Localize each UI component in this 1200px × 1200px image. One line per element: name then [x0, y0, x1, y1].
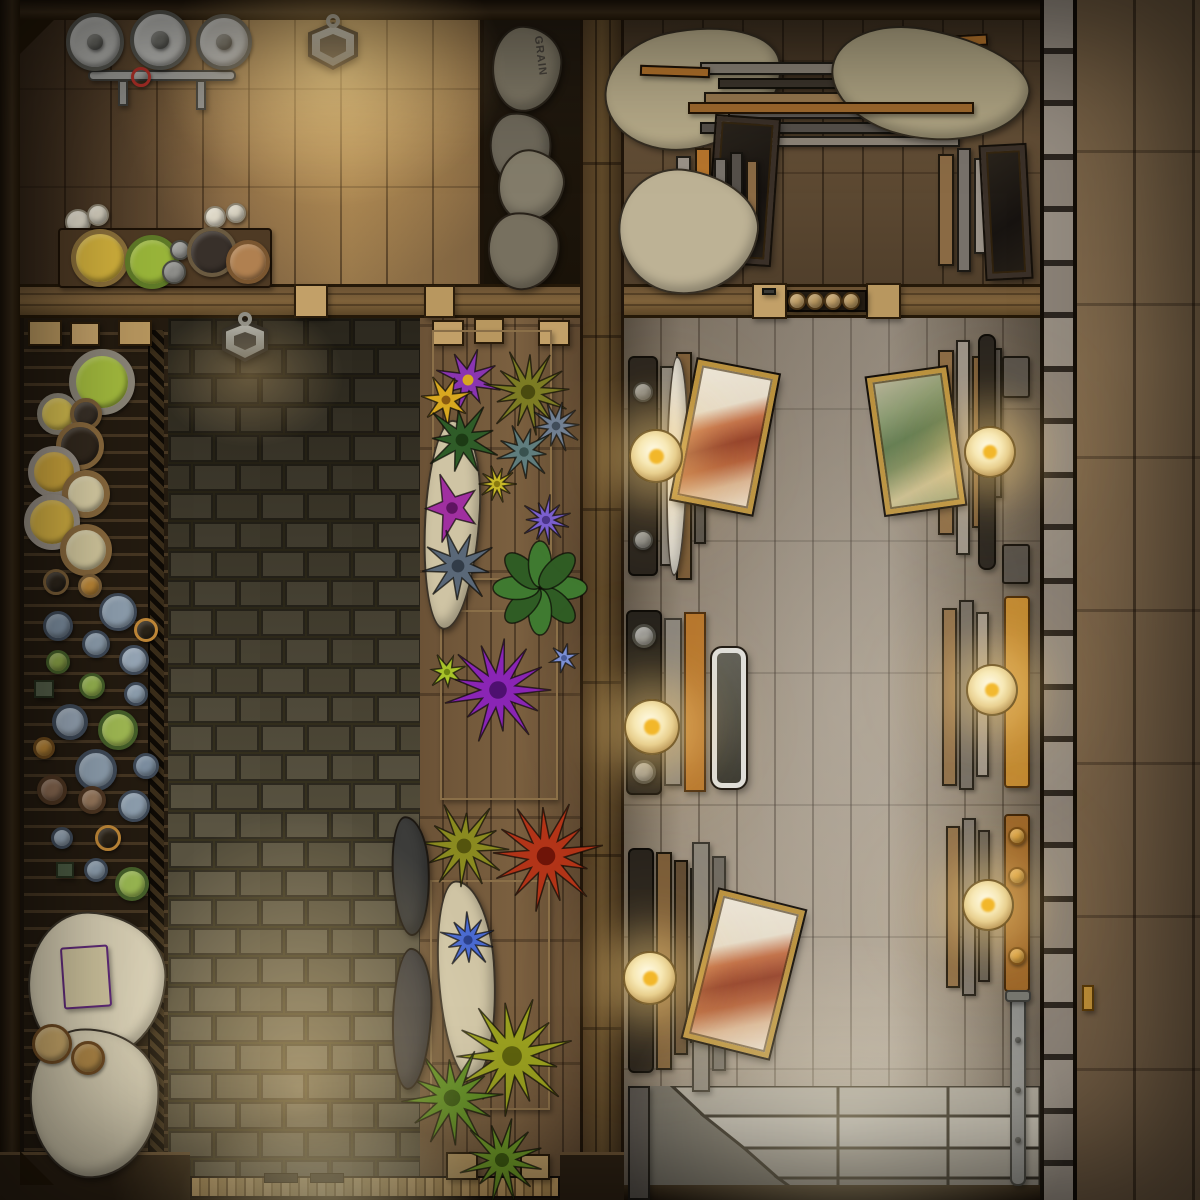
candle-lamp[interactable]: [623, 951, 677, 1005]
small-chest: [56, 862, 74, 878]
garlic-bundle: [204, 206, 226, 228]
gold-medallion: [1008, 867, 1026, 885]
water-pipe-stub: [118, 80, 128, 106]
bench-slat: [957, 148, 971, 272]
candle-flame: [643, 971, 658, 986]
clay-jar: [78, 786, 106, 814]
bench-plank-orange: [684, 612, 706, 792]
green-orb: [79, 673, 105, 699]
plant-gray-agave: [418, 526, 498, 606]
bench-slat: [938, 154, 954, 266]
amber-jar: [33, 737, 55, 759]
candle-flame: [644, 719, 660, 735]
metal-tankard: [633, 530, 653, 550]
bench-slat: [946, 826, 960, 988]
pipe-valve-hub: [151, 31, 169, 49]
log-end: [824, 292, 842, 310]
glass-orb: [124, 682, 148, 706]
amber-ring-jar: [134, 618, 158, 642]
candle-flame: [981, 898, 995, 912]
sack-of-lemons: [71, 229, 129, 287]
green-orb-large: [98, 710, 138, 750]
barrel-of-flour: [60, 524, 112, 576]
candle-lamp[interactable]: [629, 429, 683, 483]
candle-lamp[interactable]: [964, 426, 1016, 478]
green-orb-large: [115, 867, 149, 901]
garlic-bundle: [87, 204, 109, 226]
scene-items-layer: GRAIN: [0, 0, 1200, 1200]
glass-orb: [82, 630, 110, 658]
glass-orb: [133, 753, 159, 779]
pipe-rivet: [1015, 1087, 1021, 1093]
candle-lamp[interactable]: [624, 699, 680, 755]
glass-orb: [51, 827, 73, 849]
small-chest: [34, 680, 54, 698]
plant-purple-fern: [443, 635, 553, 745]
pipe-cap: [1005, 990, 1031, 1002]
glass-orb: [99, 593, 137, 631]
beam-post-block: [424, 285, 455, 318]
glass-orb-large: [75, 749, 117, 791]
garlic-bundle: [226, 203, 246, 223]
bowl-of-seeds: [43, 569, 69, 595]
grain-sack: [485, 210, 562, 293]
glass-orb-large: [52, 704, 88, 740]
candle-flame: [983, 445, 997, 459]
iron-bracket-plate: [1002, 356, 1030, 398]
storage-shelf-board: [688, 102, 974, 114]
ornate-silver-mirror[interactable]: [712, 648, 746, 788]
plant-blue-spiky: [439, 911, 497, 969]
plant-green-fern: [458, 1116, 546, 1200]
amber-ring-jar: [95, 825, 121, 851]
metal-scoop: [162, 260, 186, 284]
metal-tankard: [633, 382, 653, 402]
water-pipe-stub: [196, 80, 206, 110]
battlemap-canvas[interactable]: GRAIN: [0, 0, 1200, 1200]
gold-wall-hook: [1082, 985, 1094, 1011]
candle-flame: [985, 683, 999, 697]
dried-gourd: [32, 1024, 72, 1064]
ornate-purple-frame: [60, 944, 112, 1009]
pipe-rivet: [1015, 1037, 1021, 1043]
wall-sconce-lantern[interactable]: [308, 22, 358, 70]
sconce-ring: [326, 14, 340, 28]
pipe-rivet: [1015, 1137, 1021, 1143]
log-end: [788, 292, 806, 310]
plant-olive-fern: [418, 800, 510, 892]
log-end: [806, 292, 824, 310]
silver-pitcher: [632, 760, 656, 784]
bench-slat: [942, 608, 957, 786]
candle-lamp[interactable]: [962, 879, 1014, 931]
glass-orb: [118, 790, 150, 822]
red-valve-handle[interactable]: [131, 67, 151, 87]
stored-painting-dark: [981, 145, 1032, 279]
water-pipe-horizontal: [88, 70, 236, 81]
dried-gourd: [71, 1041, 105, 1075]
silver-pitcher: [632, 624, 656, 648]
bench-plank-stone: [664, 618, 682, 786]
grain-sack: [490, 24, 564, 114]
shelf-post-block: [28, 320, 62, 346]
pipe-valve-hub: [87, 34, 103, 50]
green-orb: [46, 650, 70, 674]
pipe-valve-hub: [216, 34, 232, 50]
door-latch: [762, 288, 776, 295]
bowl-of-amber: [78, 574, 102, 598]
path-sconce-glow: [120, 275, 380, 475]
log-end: [842, 292, 860, 310]
iron-bracket-plate: [1002, 544, 1030, 584]
gold-medallion: [1008, 827, 1026, 845]
stair-curb-slab: [628, 1086, 650, 1200]
beam-post-block: [866, 283, 901, 319]
beam-post-block: [294, 284, 328, 318]
glass-orb: [43, 611, 73, 641]
plant-violet-spiky: [520, 494, 572, 546]
clay-jar: [37, 775, 67, 805]
shelf-post-block: [70, 322, 100, 346]
grain-sack-open: [226, 240, 270, 284]
glass-orb: [84, 858, 108, 882]
path-sconce-lantern[interactable]: [222, 320, 268, 362]
shelf-post-block: [118, 320, 152, 346]
candle-lamp[interactable]: [966, 664, 1018, 716]
plant-elephant-ear: [492, 540, 588, 636]
glass-orb: [119, 645, 149, 675]
gold-medallion: [1008, 947, 1026, 965]
candle-flame: [649, 449, 664, 464]
sconce-ring: [238, 312, 252, 326]
